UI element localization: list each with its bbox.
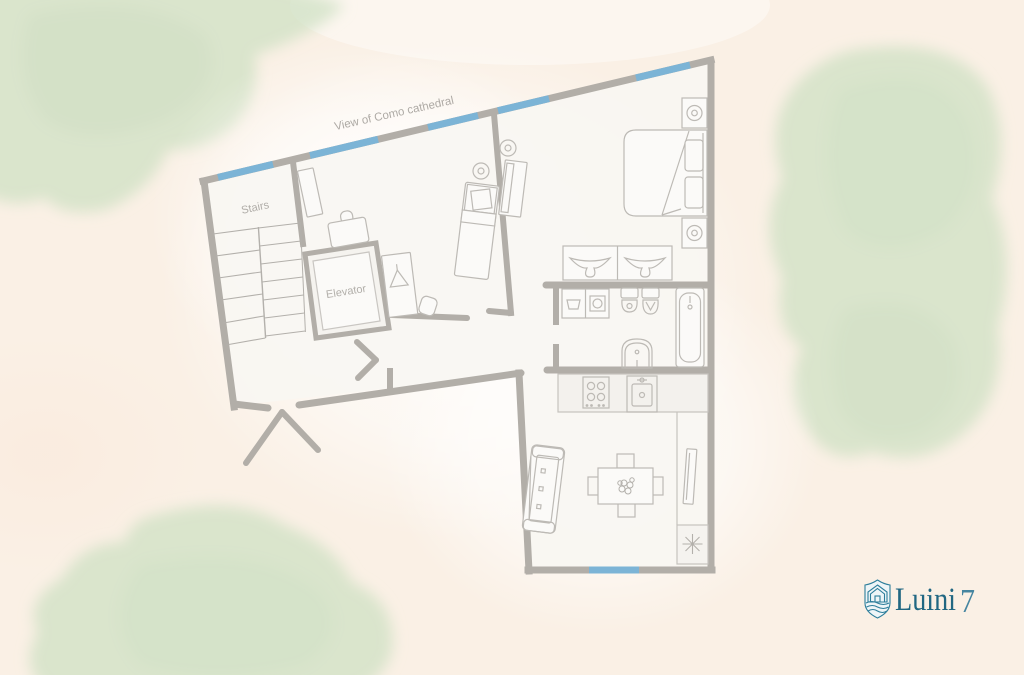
- svg-text:Luini: Luini: [895, 582, 956, 618]
- svg-text:7: 7: [960, 583, 975, 620]
